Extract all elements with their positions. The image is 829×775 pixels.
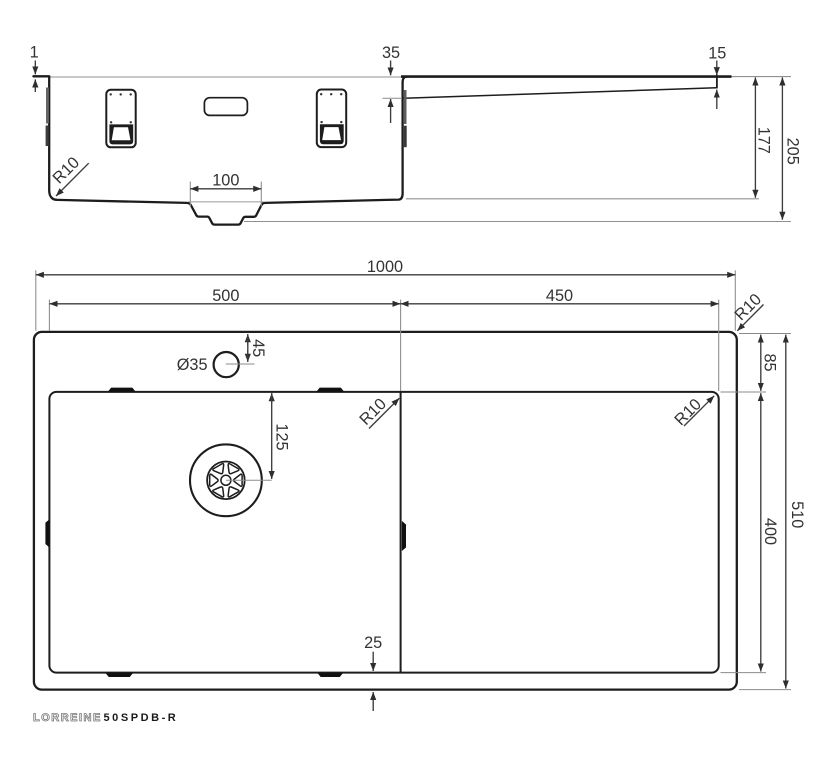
svg-text:1: 1	[30, 44, 39, 62]
svg-text:205: 205	[783, 138, 801, 165]
svg-text:85: 85	[761, 353, 779, 371]
svg-text:Ø35: Ø35	[177, 356, 208, 374]
svg-text:100: 100	[212, 172, 239, 190]
svg-text:177: 177	[754, 127, 772, 154]
svg-text:1000: 1000	[367, 258, 403, 276]
svg-text:15: 15	[708, 45, 726, 63]
svg-text:510: 510	[788, 501, 806, 528]
svg-text:50SPDB-R: 50SPDB-R	[104, 712, 179, 724]
svg-text:R10: R10	[49, 154, 83, 188]
svg-text:450: 450	[546, 287, 573, 305]
svg-text:500: 500	[212, 287, 239, 305]
svg-text:LORREINE: LORREINE	[33, 712, 102, 724]
svg-text:125: 125	[273, 423, 291, 450]
svg-text:45: 45	[249, 339, 267, 357]
svg-text:35: 35	[382, 44, 400, 62]
svg-text:400: 400	[761, 518, 779, 545]
svg-text:25: 25	[364, 634, 382, 652]
